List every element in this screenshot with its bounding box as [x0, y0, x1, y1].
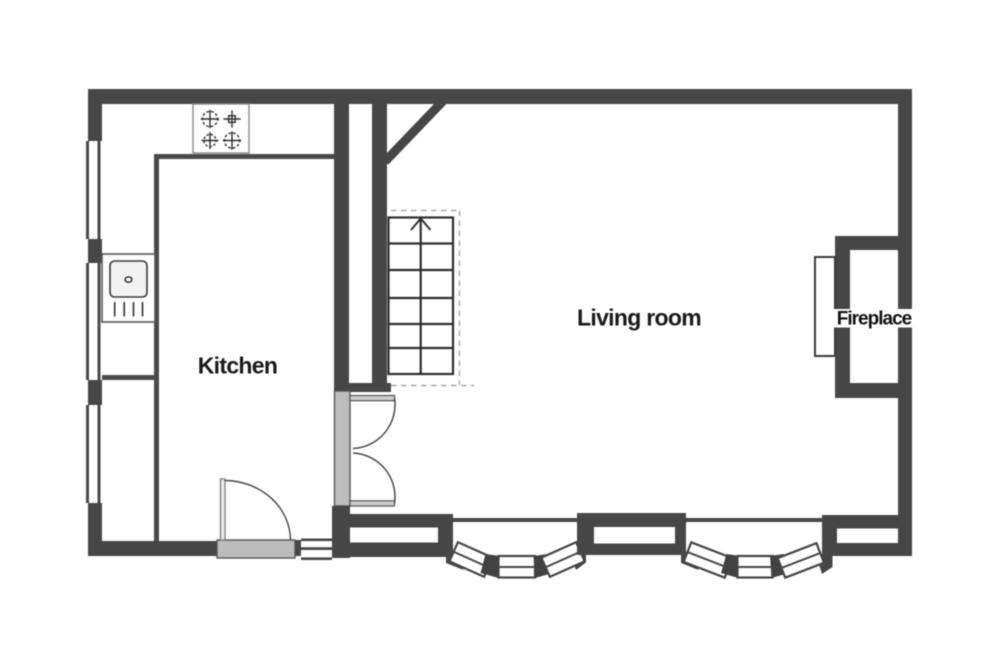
svg-text:Fireplace: Fireplace	[837, 309, 912, 330]
svg-text:Kitchen: Kitchen	[198, 353, 277, 379]
svg-text:Living room: Living room	[577, 305, 701, 331]
